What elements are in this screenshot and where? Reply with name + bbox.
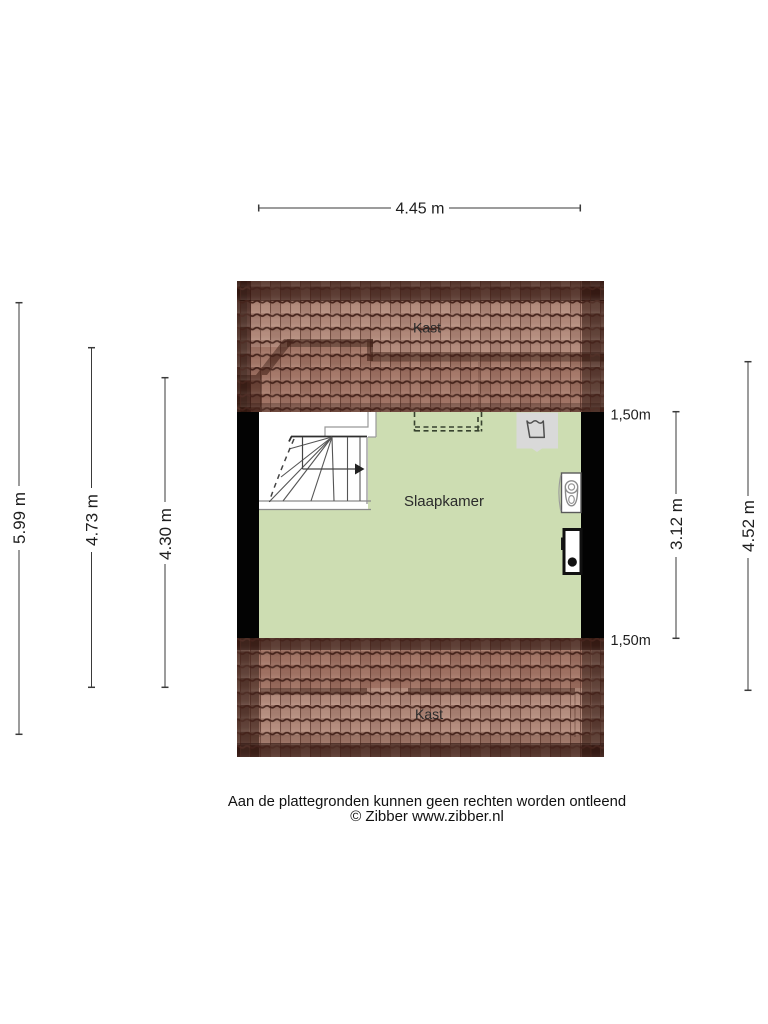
svg-text:Kast: Kast [413,320,441,336]
svg-text:1,50m: 1,50m [611,408,651,424]
svg-text:4.52 m: 4.52 m [739,500,758,552]
svg-text:© Zibber www.zibber.nl: © Zibber www.zibber.nl [350,808,504,825]
svg-text:3.12 m: 3.12 m [667,498,686,550]
svg-text:Kast: Kast [415,706,443,722]
svg-text:4.73 m: 4.73 m [83,494,102,546]
svg-text:1,50m: 1,50m [611,633,651,649]
svg-text:5.99 m: 5.99 m [10,492,29,544]
svg-text:Slaapkamer: Slaapkamer [404,493,484,510]
svg-text:4.30 m: 4.30 m [156,508,175,560]
svg-text:4.45 m: 4.45 m [396,201,445,218]
